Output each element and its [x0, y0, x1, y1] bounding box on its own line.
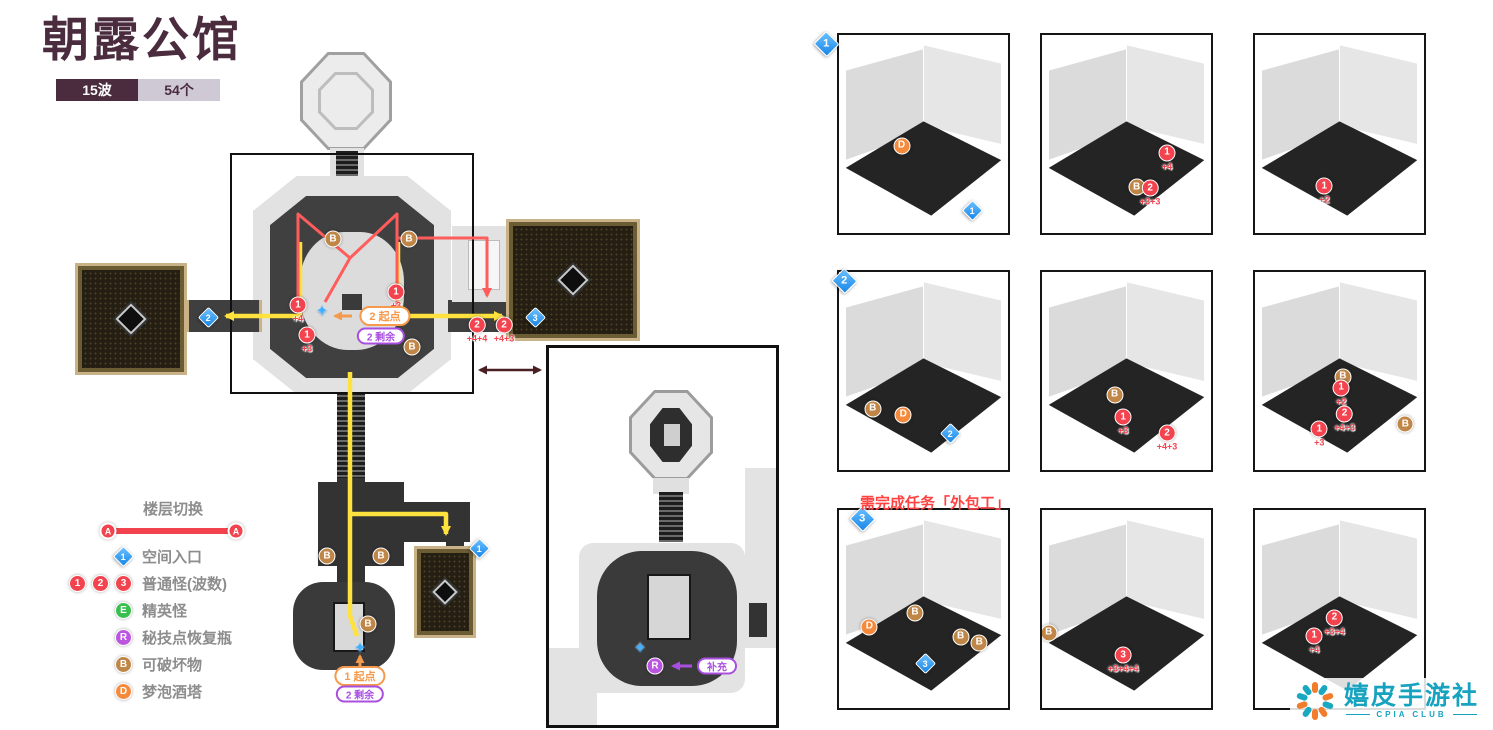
- entry-diamond-2: 2: [942, 424, 960, 442]
- wave-marker-1: 1+3: [1311, 421, 1328, 448]
- legend-item-label: 精英怪: [142, 600, 187, 621]
- dia: 2: [940, 423, 961, 444]
- legend-item-waves: 123普通怪(波数): [40, 573, 280, 594]
- wave-marker-icon: 1: [69, 575, 86, 592]
- badges: 15波 54个: [56, 79, 220, 101]
- wave-count-label: +3+4+4: [1108, 665, 1139, 674]
- lg-mk: E: [40, 602, 132, 619]
- room-dia: [432, 579, 457, 604]
- tile-markers: B1+42+3+3: [1042, 35, 1211, 233]
- wave-count-badge: 15波: [56, 79, 138, 101]
- marker-d-icon: D: [893, 137, 910, 154]
- lg-mk: 1: [40, 548, 132, 566]
- marker-b-icon: B: [115, 656, 132, 673]
- shape: [506, 219, 640, 341]
- shape: [321, 75, 371, 127]
- span: 1: [970, 205, 975, 215]
- wave-marker-icon: 1: [1115, 409, 1132, 426]
- shape: [333, 602, 365, 652]
- span: 3: [923, 658, 928, 668]
- wave-count-label: +2: [1319, 196, 1329, 205]
- tile-markers: B1+32+4+3: [1042, 272, 1211, 470]
- map-selection-rect: [230, 153, 474, 394]
- shape: [749, 603, 767, 637]
- wave-marker-2: 2+3+3: [1140, 180, 1161, 207]
- dia: 1: [112, 546, 133, 567]
- marker-d-icon: D: [861, 618, 878, 635]
- shape: [664, 424, 680, 446]
- wave-count-label: +4: [1309, 645, 1319, 654]
- wave-marker-1: 1+4: [1159, 144, 1176, 171]
- span: 1: [476, 543, 481, 553]
- legend-item-label: 梦泡酒塔: [142, 681, 202, 702]
- legend: 楼层切换 A A 1空间入口123普通怪(波数)E精英怪R秘技点恢复瓶B可破坏物…: [40, 498, 280, 708]
- wave-marker-1: 1+4: [1306, 627, 1323, 654]
- marker-b-icon: B: [1040, 624, 1057, 641]
- wave-count-label: +3: [1118, 427, 1128, 436]
- guide-canvas: 朝露公馆 15波 54个: [0, 0, 1493, 730]
- room-screenshot-tile-1-3: 1+2: [1253, 33, 1426, 235]
- entry-diamond-3: 3: [916, 654, 934, 672]
- wave-marker-1: 1+3: [1115, 409, 1132, 436]
- legend-item-label: 可破坏物: [142, 654, 202, 675]
- room-screenshot-tile-3-2: B3+3+4+4: [1040, 508, 1213, 710]
- wm-text: 嬉皮手游社 CPIA CLUB: [1344, 683, 1479, 718]
- floor-switch-line: A A: [108, 528, 236, 534]
- wave-marker-2: 2+4+3: [1334, 405, 1355, 432]
- shape: [549, 648, 597, 725]
- marker-r-icon: R: [115, 629, 132, 646]
- marker-d-icon: D: [895, 406, 912, 423]
- wave-marker-icon: 2: [92, 575, 109, 592]
- g: [1312, 709, 1318, 720]
- pinwheel-logo-icon: [1294, 680, 1336, 722]
- marker-b: B: [864, 400, 881, 417]
- tile-markers: B3+3+4+4: [1042, 510, 1211, 708]
- watermark-club: CPIA CLUB: [1346, 710, 1476, 719]
- wave-count-label: +3+4: [1324, 627, 1345, 636]
- wave-marker-icon: 2: [1159, 425, 1176, 442]
- wave-marker-icon: 3: [115, 575, 132, 592]
- dia: 3: [915, 653, 936, 674]
- page-title: 朝露公馆: [42, 16, 242, 63]
- shape: [337, 392, 365, 480]
- marker-b: B: [952, 628, 969, 645]
- tile-row-number-1: 1: [817, 35, 835, 53]
- shape: [659, 492, 683, 542]
- marker-b-icon: B: [1106, 386, 1123, 403]
- wave-marker-icon: 3: [1115, 647, 1132, 664]
- wave-marker-icon: 2: [1326, 609, 1343, 626]
- wave-marker-icon: 1: [1306, 627, 1323, 644]
- marker-e-icon: E: [115, 602, 132, 619]
- wave-count-label: +4: [1162, 162, 1172, 171]
- marker-b-icon: B: [971, 634, 988, 651]
- marker-b-icon: B: [952, 628, 969, 645]
- legend-floor-switch-label: 楼层切换: [98, 498, 248, 519]
- room-screenshot-tile-3-1: DBBB3: [837, 508, 1010, 710]
- wave-count-label: +4+3: [1157, 443, 1178, 452]
- marker-b-icon: B: [1397, 416, 1414, 433]
- marker-b: B: [1106, 386, 1123, 403]
- wave-count-label: +3+3: [1140, 198, 1161, 207]
- watermark-name: 嬉皮手游社: [1344, 683, 1479, 709]
- legend-item-technique: R秘技点恢复瓶: [40, 627, 280, 648]
- tile-markers: BD2: [839, 272, 1008, 470]
- legend-item-label: 秘技点恢复瓶: [142, 627, 232, 648]
- wave-count-label: +3: [1314, 439, 1324, 448]
- shape: [414, 546, 476, 638]
- marker-b-icon: B: [864, 400, 881, 417]
- room-dia: [557, 264, 588, 295]
- room-screenshot-tile-1-1: D1: [837, 33, 1010, 235]
- g: [1312, 682, 1318, 693]
- span: 1: [823, 38, 829, 50]
- wave-marker-1: 1+2: [1333, 379, 1350, 406]
- lg-mk: 123: [40, 575, 132, 592]
- room-screenshot-tile-1-2: B1+42+3+3: [1040, 33, 1213, 235]
- wave-marker-icon: 1: [1316, 178, 1333, 195]
- lg-mk: D: [40, 683, 132, 700]
- rect: [1312, 682, 1318, 693]
- shape: [647, 574, 691, 640]
- marker-b: B: [1040, 624, 1057, 641]
- room-screenshot-tile-2-3: B1+22+4+31+3B: [1253, 270, 1426, 472]
- span: 2: [841, 275, 847, 287]
- tile-markers: 1+2: [1255, 35, 1424, 233]
- legend-item-label: 普通怪(波数): [142, 573, 227, 594]
- entry-diamond-icon: 1: [114, 548, 132, 566]
- wave-marker-2: 2+4+3: [1157, 425, 1178, 452]
- rect: [1312, 709, 1318, 720]
- label-pill-purple: 2 剩余: [336, 686, 384, 703]
- marker-b: B: [971, 634, 988, 651]
- shape: [75, 263, 187, 375]
- marker-b-icon: B: [907, 604, 924, 621]
- legend-items: 1空间入口123普通怪(波数)E精英怪R秘技点恢复瓶B可破坏物D梦泡酒塔: [40, 546, 280, 702]
- floor-marker-a: A: [228, 523, 245, 540]
- inset-map: [546, 345, 779, 728]
- marker-d-icon: D: [115, 683, 132, 700]
- legend-item-elite: E精英怪: [40, 600, 280, 621]
- dia: 1: [813, 31, 839, 57]
- wave-marker-icon: 2: [1336, 405, 1353, 422]
- lg-mk: R: [40, 629, 132, 646]
- dia: 1: [962, 200, 983, 221]
- wave-marker-icon: 1: [1333, 379, 1350, 396]
- span: 1: [120, 551, 125, 561]
- legend-item-label: 空间入口: [142, 546, 202, 567]
- wave-marker-1: 1+2: [1316, 178, 1333, 205]
- tile-markers: DBBB3: [839, 510, 1008, 708]
- tile-markers: B1+22+4+31+3B: [1255, 272, 1424, 470]
- span: 2: [948, 428, 953, 438]
- legend-item-breakable: B可破坏物: [40, 654, 280, 675]
- entry-diamond-1: 1: [964, 201, 982, 219]
- tile-markers: D1: [839, 35, 1008, 233]
- floor-marker-a: A: [100, 523, 117, 540]
- marker-d: D: [895, 406, 912, 423]
- item-count-badge: 54个: [138, 79, 220, 101]
- wave-marker-icon: 1: [1159, 144, 1176, 161]
- wave-marker-2: 2+3+4: [1324, 609, 1345, 636]
- wave-marker-3: 3+3+4+4: [1108, 647, 1139, 674]
- wave-marker-icon: 2: [1142, 180, 1159, 197]
- room-screenshot-tile-2-2: B1+32+4+3: [1040, 270, 1213, 472]
- marker-b: B: [1397, 416, 1414, 433]
- room-dia: [115, 303, 146, 334]
- shape: [446, 520, 464, 548]
- lg-mk: B: [40, 656, 132, 673]
- wave-count-label: +4+3: [1334, 423, 1355, 432]
- task-requirement-note: 需完成任务「外包工」: [860, 492, 1010, 513]
- marker-d: D: [861, 618, 878, 635]
- wave-marker-icon: 1: [1311, 421, 1328, 438]
- span: 3: [859, 513, 865, 525]
- marker-d: D: [893, 137, 910, 154]
- tile-row-number-2: 2: [835, 272, 853, 290]
- watermark: 嬉皮手游社 CPIA CLUB: [1290, 678, 1483, 724]
- marker-b: B: [907, 604, 924, 621]
- legend-item-entry: 1空间入口: [40, 546, 280, 567]
- room-screenshot-tile-2-1: BD2: [837, 270, 1010, 472]
- legend-item-tower: D梦泡酒塔: [40, 681, 280, 702]
